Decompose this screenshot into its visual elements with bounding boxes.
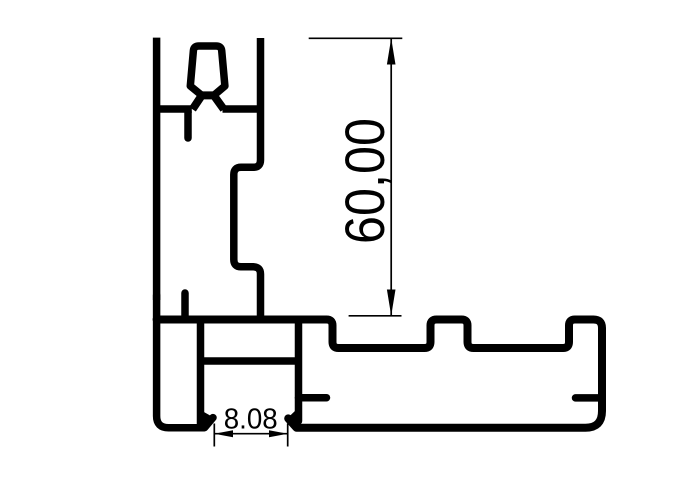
svg-text:60,00: 60,00: [334, 118, 396, 244]
svg-text:8.08: 8.08: [224, 404, 278, 436]
